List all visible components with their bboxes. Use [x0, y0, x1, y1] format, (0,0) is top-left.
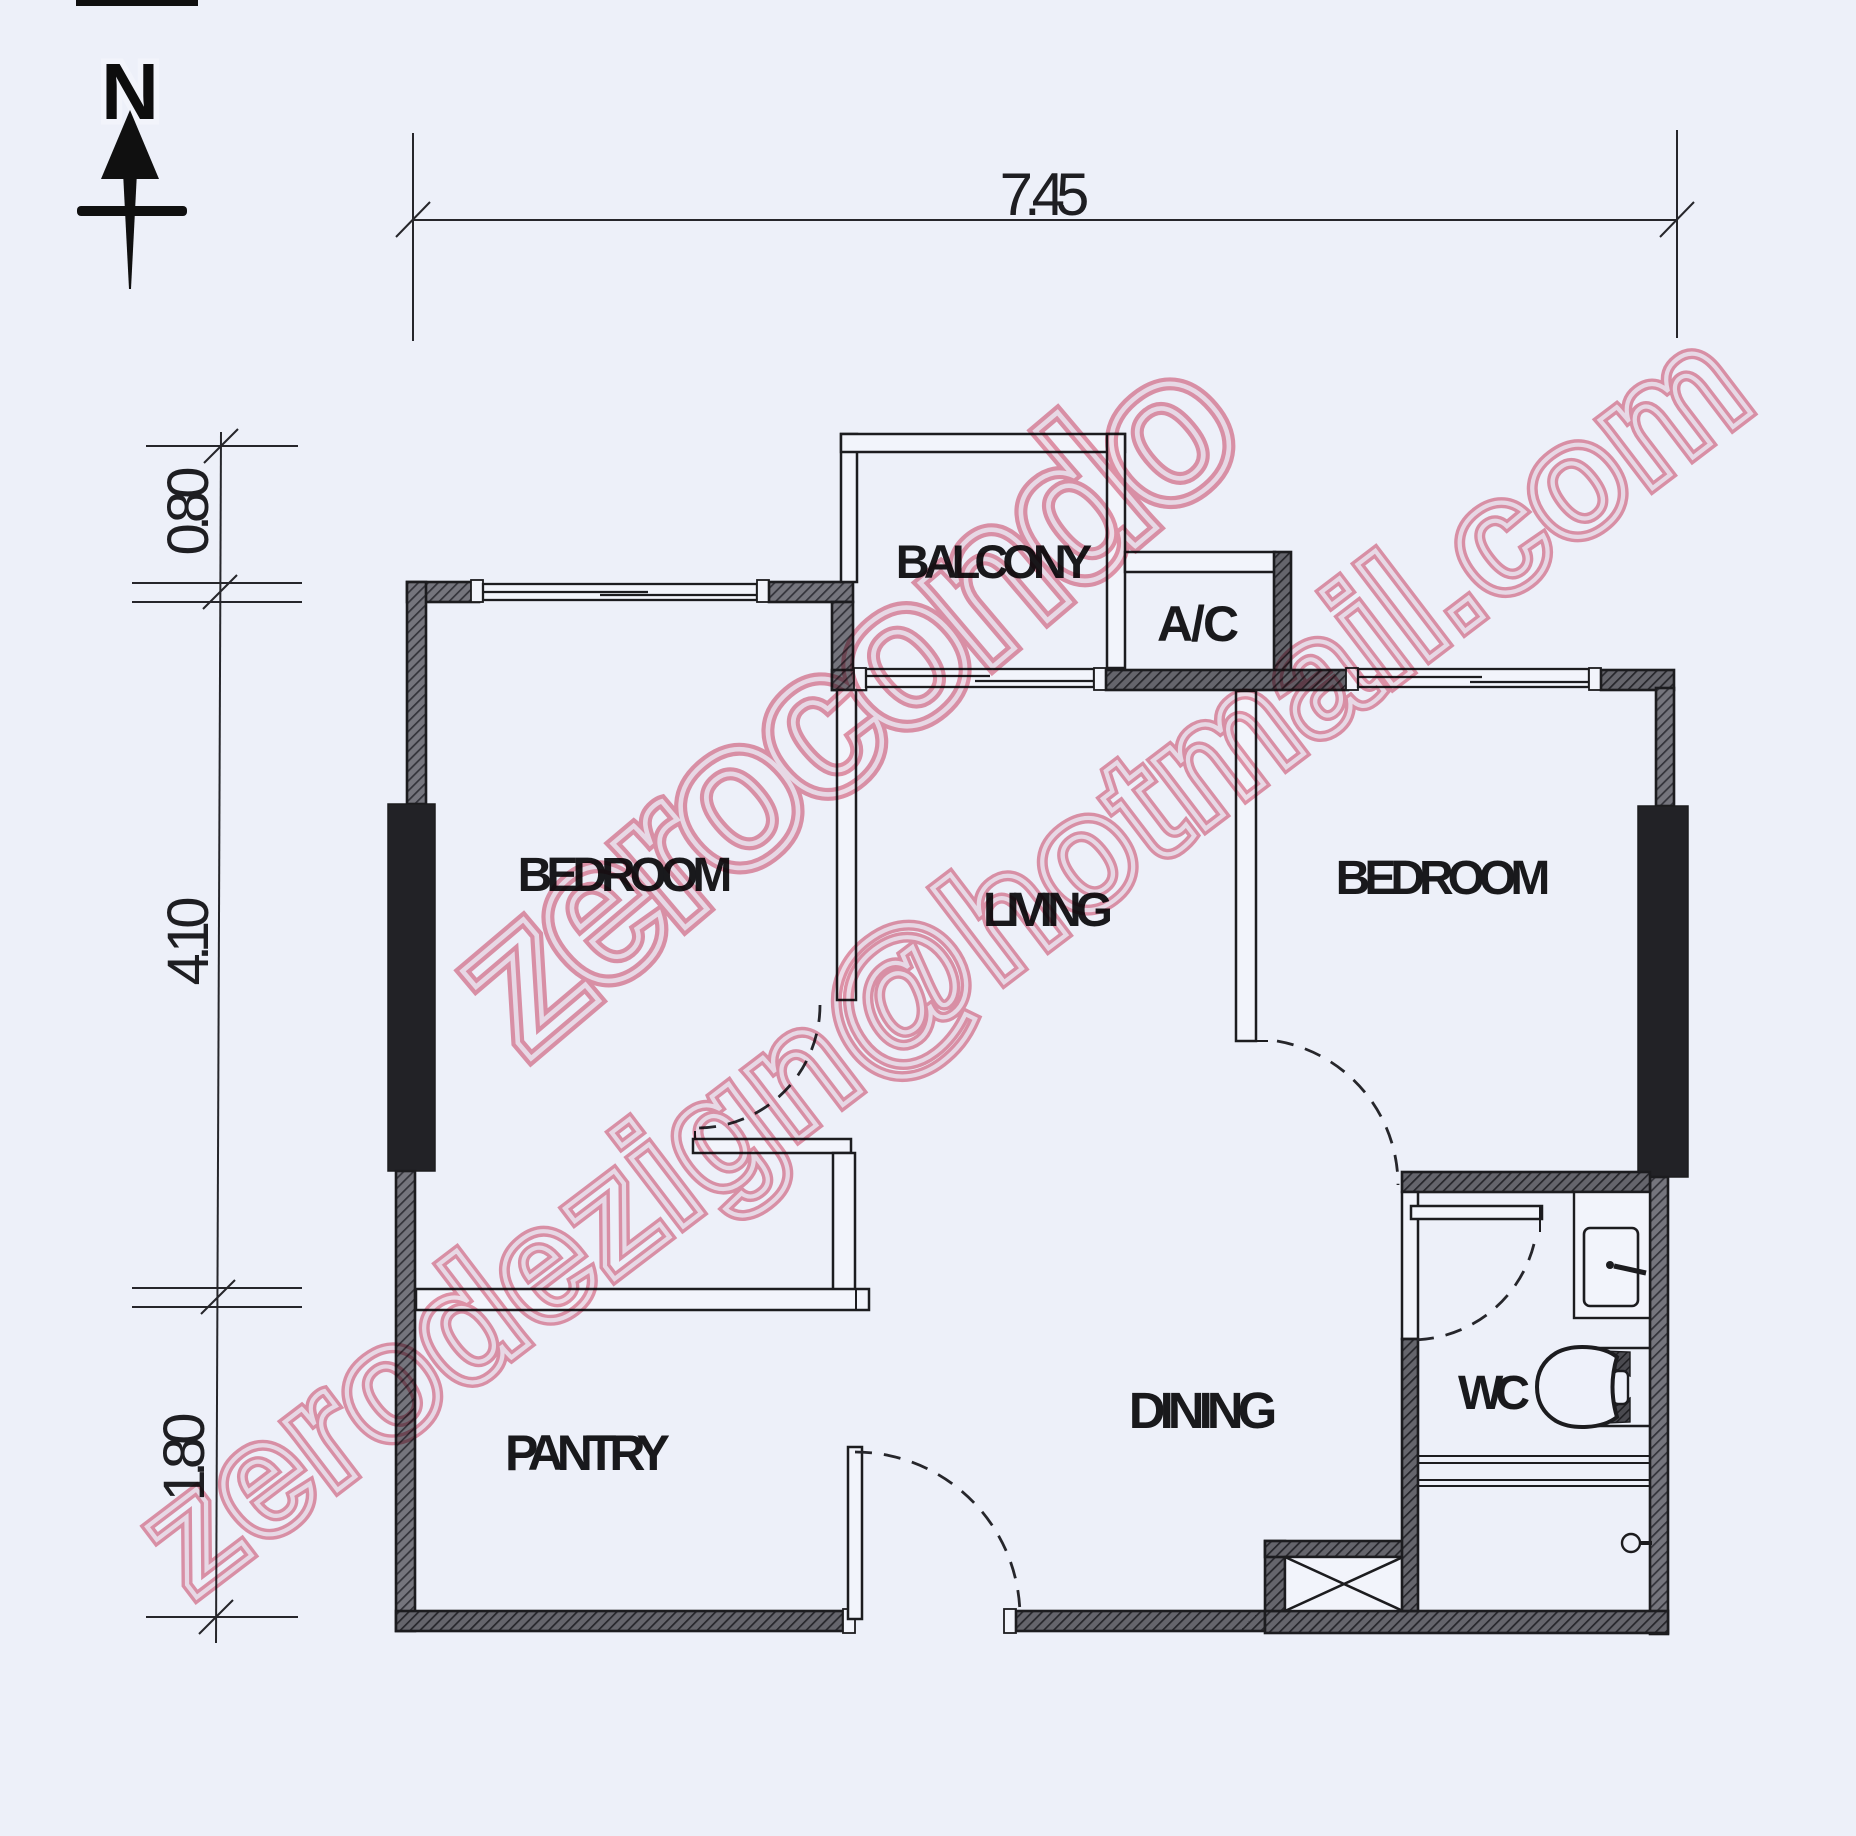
svg-text:BEDROOM: BEDROOM: [1336, 852, 1548, 905]
svg-text:0.80: 0.80: [156, 469, 221, 556]
svg-text:WC: WC: [1458, 1367, 1529, 1420]
svg-text:7.45: 7.45: [1000, 161, 1087, 228]
svg-text:4.10: 4.10: [156, 899, 221, 986]
svg-text:DINING: DINING: [1129, 1382, 1275, 1439]
svg-text:PANTRY: PANTRY: [505, 1425, 670, 1481]
